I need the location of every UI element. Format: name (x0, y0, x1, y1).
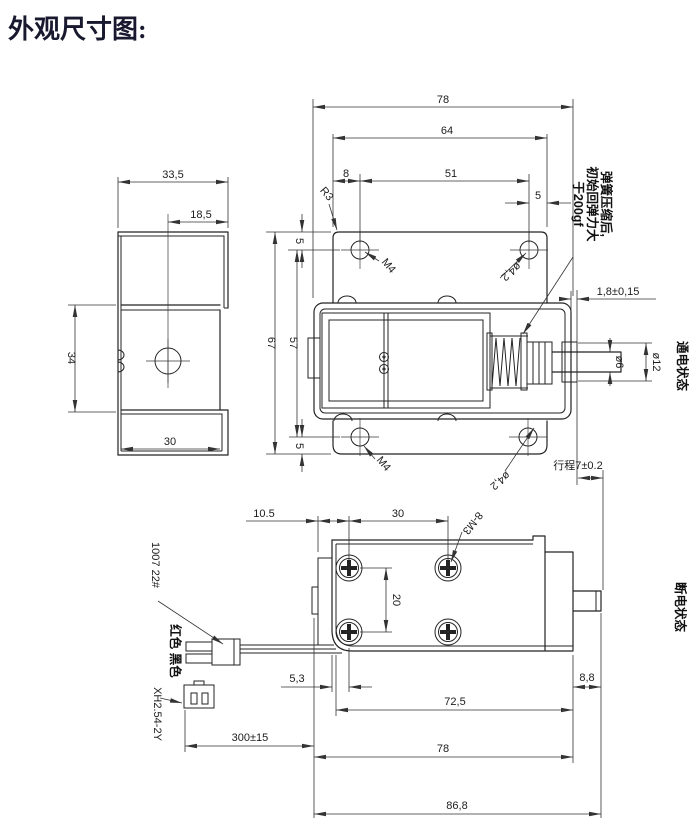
dim-hole-offset: 8 (343, 168, 349, 180)
spring-note-line1: 弹簧压缩后, (599, 171, 614, 237)
page-title: 外观尺寸图: (8, 15, 147, 44)
state-label-deenergized: 断电状态 (673, 582, 688, 633)
dim-stroke: 行程7±0.2 (553, 459, 602, 472)
bottom-view: 10.5 30 8-M3 20 5,3 72,5 8,8 300±15 78 8… (149, 508, 688, 818)
dim-wall-thickness: 1,8±0,15 (597, 286, 640, 298)
state-label-energized: 通电状态 (675, 341, 690, 392)
dim-right-edge-offset: 5 (535, 190, 541, 202)
wire-exit-tab (318, 558, 332, 645)
bracket-band-bottom (333, 421, 547, 454)
dim-shaft-dia: ø6 (613, 356, 625, 369)
dim-hole-spacing: 51 (445, 168, 457, 180)
label-hole-dia-top: ø4,2 (499, 260, 524, 283)
lead-wires (240, 645, 342, 653)
connector-front-view (184, 681, 214, 708)
screw-hole (435, 619, 461, 645)
dim-bottom-width: 30 (164, 436, 176, 448)
label-wire-colors: 红色 黑色 (168, 624, 183, 678)
dim-plate-width: 64 (441, 125, 453, 137)
connector-side-view (186, 639, 240, 665)
dim-case-length: 78 (437, 743, 449, 755)
dim-hole-spacing-x: 30 (392, 508, 404, 520)
coil-bobbin (322, 313, 490, 408)
dim-wire-length: 300±15 (232, 732, 269, 744)
spring-note-line3: 于200gf (571, 181, 585, 227)
dim-bottom-edge-offset: 5 (293, 443, 305, 449)
drawing-page: 外观尺寸图: 33,5 18,5 34 30 (0, 0, 700, 830)
dimension-drawing: 外观尺寸图: 33,5 18,5 34 30 (0, 0, 700, 830)
label-thread-bottom: M4 (374, 454, 393, 473)
label-hole-dia-bottom: ø4,2 (488, 469, 513, 492)
label-thread-holes: 8-M3 (460, 509, 485, 536)
shaft-bushing (562, 342, 577, 382)
label-connector-type: XH2.54-2Y (151, 687, 163, 741)
dim-web-height: 34 (65, 352, 77, 364)
dim-left-offset: 10.5 (253, 508, 274, 520)
dim-bushing-dia: ø12 (650, 353, 662, 372)
spring-note: 弹簧压缩后, 初始回弹力大 于200gf (571, 166, 614, 242)
dim-total-length: 86,8 (446, 800, 467, 812)
plunger-tip (573, 591, 601, 611)
dim-body-length: 72,5 (444, 696, 465, 708)
screw-hole (336, 619, 362, 645)
dim-wire-offset: 5,3 (289, 673, 304, 685)
side-view: 33,5 18,5 34 30 (65, 169, 228, 455)
dim-hole-to-edge: 18,5 (190, 209, 211, 221)
dim-hole-spacing-y: 20 (390, 594, 402, 606)
dim-inner-height: 57 (287, 337, 299, 349)
dim-overall-width: 78 (437, 94, 449, 106)
dim-top-edge-offset: 5 (293, 238, 305, 244)
label-wire-spec: 1007 22# (149, 542, 161, 589)
spring (492, 338, 520, 386)
dim-tip-length: 8,8 (579, 672, 594, 684)
spring-note-line2: 初始回弹力大 (585, 166, 600, 242)
label-thread-top: M4 (379, 256, 398, 275)
dim-overall-height: 67 (265, 337, 277, 349)
dim-top-width: 33,5 (162, 169, 183, 181)
